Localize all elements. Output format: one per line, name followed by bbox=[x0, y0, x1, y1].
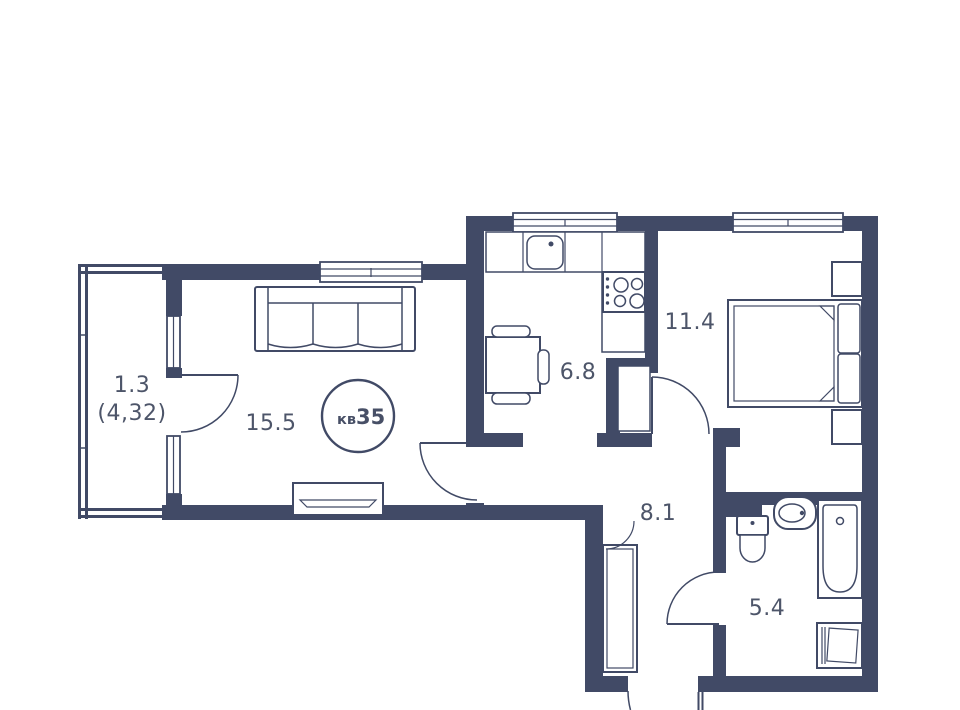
bathroom-area-label: 5.4 bbox=[749, 596, 786, 621]
bathroom-door-swing-icon bbox=[667, 572, 719, 624]
dining-table-icon bbox=[486, 326, 549, 404]
balcony-door-swing-icon bbox=[181, 375, 238, 432]
room-labels: 1.3 (4,32) 15.5 6.8 11.4 8.1 5.4 bbox=[97, 310, 785, 621]
stove-icon bbox=[603, 272, 645, 312]
nightstand-icon bbox=[832, 262, 862, 296]
balcony-area-label: 1.3 bbox=[114, 373, 151, 398]
hallway-area-label: 8.1 bbox=[640, 501, 677, 526]
balcony-area-secondary-label: (4,32) bbox=[97, 401, 166, 426]
living-room-window-icon bbox=[320, 262, 422, 282]
bathtub-icon bbox=[818, 500, 862, 598]
wardrobe-icon bbox=[603, 521, 637, 672]
tv-stand-icon bbox=[293, 483, 383, 515]
pillow-icon bbox=[838, 354, 860, 403]
balcony-window-icon bbox=[167, 316, 180, 494]
dining-chair-icon bbox=[538, 350, 549, 384]
shaft-icon bbox=[618, 366, 650, 431]
nightstand-icon bbox=[832, 410, 862, 444]
dining-chair-icon bbox=[492, 393, 530, 404]
apartment-unit-label: кв bbox=[337, 412, 356, 428]
pillow-icon bbox=[838, 304, 860, 353]
bed-icon bbox=[728, 300, 862, 407]
kitchen-sink-icon bbox=[527, 236, 563, 269]
bedroom-door-swing-icon bbox=[652, 377, 709, 434]
toilet-icon bbox=[737, 516, 768, 562]
apartment-number-badge: кв35 bbox=[322, 380, 394, 452]
washing-machine-icon bbox=[817, 623, 862, 668]
floor-plan: 1.3 (4,32) 15.5 6.8 11.4 8.1 5.4 кв35 bbox=[0, 0, 960, 710]
living-room-area-label: 15.5 bbox=[246, 411, 297, 436]
apartment-unit-number: 35 bbox=[356, 405, 385, 429]
dining-chair-icon bbox=[492, 326, 530, 337]
bedroom-window-icon bbox=[733, 213, 843, 232]
living-room-door-swing-icon bbox=[420, 443, 477, 500]
kitchen-window-icon bbox=[513, 213, 617, 232]
bedroom-area-label: 11.4 bbox=[665, 310, 716, 335]
sofa-icon bbox=[255, 287, 415, 351]
entrance-door-swing-icon bbox=[628, 691, 703, 710]
floor-plan-page: 1.3 (4,32) 15.5 6.8 11.4 8.1 5.4 кв35 bbox=[0, 0, 960, 710]
washbasin-icon bbox=[774, 497, 816, 529]
kitchen-area-label: 6.8 bbox=[560, 360, 597, 385]
